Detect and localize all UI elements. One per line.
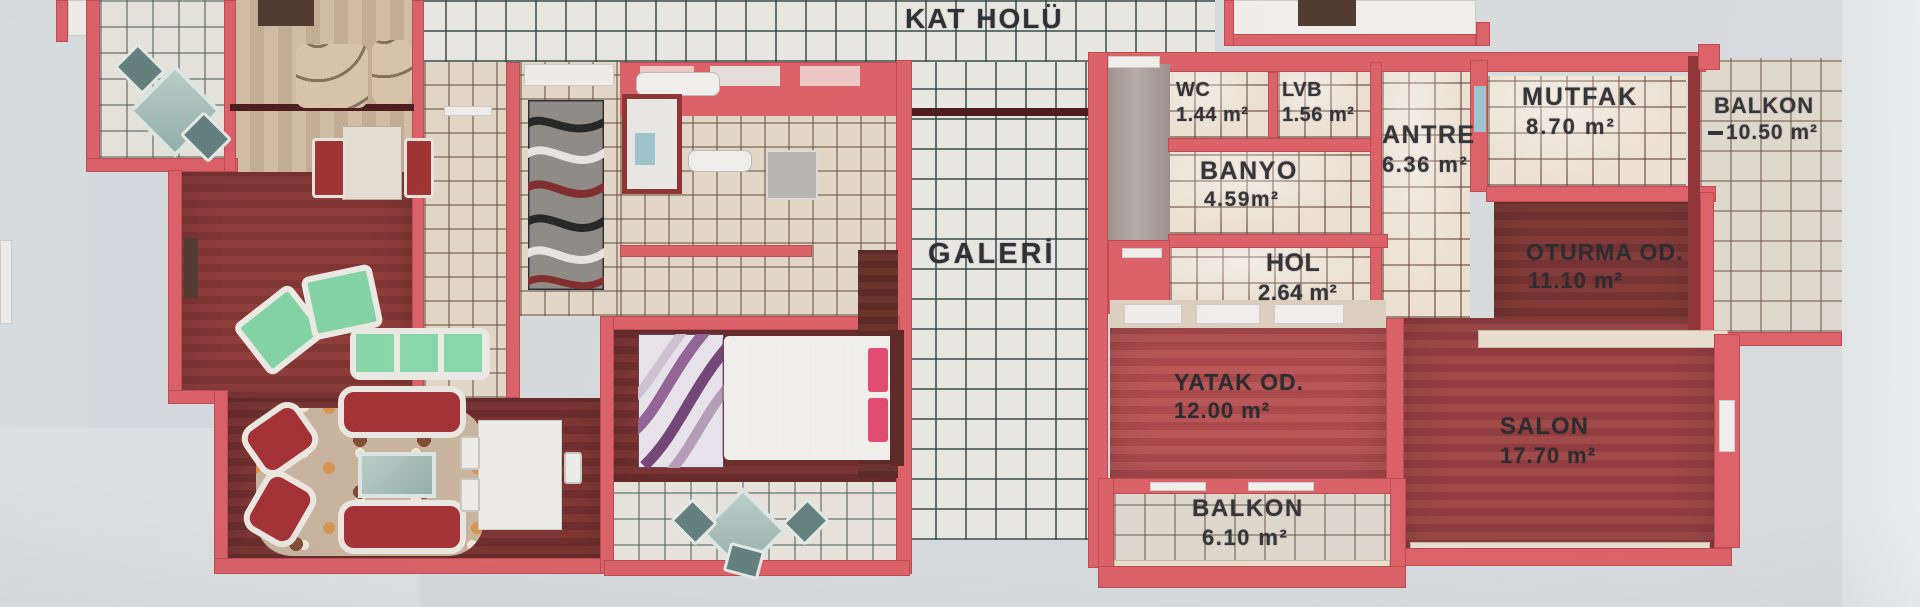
wall-segment [1688, 56, 1700, 334]
wall-segment [214, 390, 228, 574]
room-area: 8.70 m² [1522, 113, 1638, 141]
window-slab [1248, 482, 1314, 491]
room-area: 11.10 m² [1526, 267, 1683, 295]
room-name: BALKON [1192, 495, 1304, 522]
dining-chair-white [564, 452, 582, 484]
dining-chair [312, 138, 346, 198]
tv-unit [184, 238, 198, 298]
room-label-balkon-bottom: BALKON 6.10 m² [1192, 494, 1304, 552]
room-area: 6.10 m² [1192, 524, 1304, 552]
room-name: BALKON [1708, 93, 1814, 118]
window-slab [1150, 482, 1206, 491]
room-label-wc: WC 1.44 m² [1176, 78, 1248, 128]
coffee-table [358, 452, 436, 498]
duvet [744, 342, 866, 454]
room-label-oturma: OTURMA OD. 11.10 m² [1526, 238, 1683, 294]
door-slab [1122, 248, 1162, 258]
wall-segment [1268, 72, 1278, 138]
wardrobe-door [1274, 304, 1344, 324]
room-name: MUTFAK [1522, 83, 1638, 111]
wall-segment [1402, 548, 1732, 566]
dining-chair-white [460, 436, 480, 470]
pillow [868, 348, 888, 392]
room-area: 2.64 m² [1258, 279, 1337, 307]
wall-segment [1098, 566, 1406, 588]
door-slab [444, 106, 492, 116]
room-name: BANYO [1200, 157, 1298, 185]
sofa [350, 328, 490, 380]
room-label-hol: HOL 2.64 m² [1258, 248, 1337, 307]
room-label-yatak: YATAK OD. 12.00 m² [1174, 368, 1304, 424]
wavy-rug [528, 100, 604, 290]
door-slab [1108, 56, 1160, 68]
wall-highlight [800, 66, 860, 86]
room-name: HOL [1258, 249, 1320, 277]
room-area: 1.56 m² [1282, 103, 1354, 128]
galeri-edge-line [905, 108, 1091, 116]
bed-headboard [890, 330, 904, 466]
wall-segment [1476, 22, 1490, 46]
background [0, 0, 88, 430]
purple-wave-rug [638, 334, 724, 468]
sink [688, 150, 752, 172]
kitchen-counter [524, 64, 614, 86]
room-area: 6.36 m² [1382, 151, 1476, 179]
sink [636, 72, 720, 96]
wall-segment [1168, 138, 1372, 152]
red-armchair [338, 500, 466, 554]
room-area: 12.00 m² [1174, 397, 1304, 425]
wall-segment [214, 558, 608, 574]
wall-segment [1232, 34, 1476, 46]
room-name: LVB [1282, 79, 1322, 101]
red-armchair [338, 386, 466, 438]
leader-line [1708, 131, 1723, 135]
wall-segment [620, 245, 812, 257]
wall-segment [1486, 186, 1716, 202]
room-label-salon: SALON 17.70 m² [1500, 412, 1596, 470]
wall-segment [1698, 44, 1720, 70]
room-name: YATAK OD. [1174, 369, 1304, 395]
hall-label: KAT HOLÜ [905, 3, 1064, 35]
wall-segment [506, 62, 520, 398]
room-area: 10.50 m² [1726, 121, 1818, 144]
sideboard [258, 0, 314, 26]
galeri-label: GALERİ [928, 238, 1056, 271]
background [1842, 0, 1920, 607]
room-area: 17.70 m² [1500, 442, 1596, 470]
double-bed [724, 336, 894, 460]
dining-chair-white [460, 478, 480, 512]
wardrobe-door [1124, 304, 1182, 324]
room-label-lvb: LVB 1.56 m² [1282, 78, 1354, 128]
antre-floor [1382, 72, 1470, 318]
room-label-antre: ANTRE 6.36 m² [1382, 120, 1476, 179]
dining-table-white [478, 420, 562, 530]
plan-fragment [0, 240, 12, 324]
room-label-banyo: BANYO 4.59m² [1200, 156, 1298, 214]
room-name: SALON [1500, 413, 1589, 440]
sofa-cushions [356, 334, 484, 372]
appliance [766, 150, 818, 200]
wall-segment [86, 0, 100, 172]
wall-segment [1386, 318, 1404, 480]
room-name: ANTRE [1382, 121, 1476, 149]
dining-table [342, 126, 402, 200]
shower-cabin [622, 94, 682, 194]
shower-glass [635, 133, 655, 165]
room-area: 1.44 m² [1176, 103, 1248, 128]
wall-segment [1370, 62, 1382, 312]
wall-segment [1700, 192, 1714, 338]
half-wall-ledge [1478, 330, 1728, 348]
wall-segment [1088, 52, 1706, 72]
wall-segment [86, 158, 238, 172]
pillow [868, 398, 888, 442]
wall-segment [1168, 234, 1388, 248]
room-area: 4.59m² [1200, 187, 1298, 213]
wall-highlight [710, 66, 780, 86]
room-label-mutfak: MUTFAK 8.70 m² [1522, 82, 1638, 141]
room-name: OTURMA OD. [1526, 239, 1683, 265]
wall-segment [600, 316, 900, 330]
floor-plan-photo: KAT HOLÜ GALERİ WC 1.44 m² LVB 1.56 m² B… [0, 0, 1920, 607]
galeri-floor [905, 62, 1091, 540]
patterned-armchair [296, 44, 368, 108]
dining-chair [404, 138, 434, 198]
furniture-fragment [1298, 0, 1356, 26]
wall-segment [1224, 0, 1234, 46]
wall-segment [600, 316, 614, 574]
wall-segment [168, 170, 182, 402]
wardrobe-door [1196, 304, 1260, 324]
room-name: WC [1176, 79, 1210, 101]
room-label-balkon-top: BALKON 10.50 m² [1708, 92, 1818, 146]
wall-segment [224, 0, 236, 172]
window-slab [1719, 400, 1735, 452]
patterned-armchair [372, 40, 412, 104]
wall-segment [56, 0, 68, 42]
